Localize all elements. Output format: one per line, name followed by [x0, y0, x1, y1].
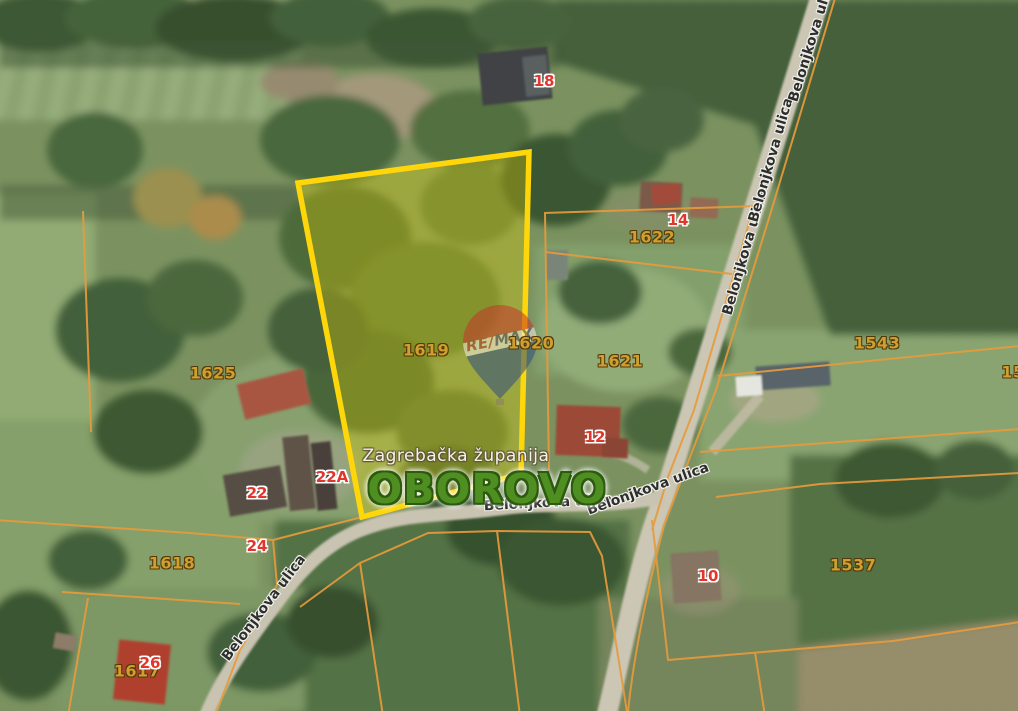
parcel-label-1537: 1537 [830, 556, 877, 575]
parcel-label-partial-15: 15 [1001, 363, 1018, 382]
parcel-label-1622: 1622 [629, 228, 676, 247]
parcel-label-1618: 1618 [149, 554, 196, 573]
parcel-label-1625: 1625 [190, 364, 237, 383]
house-number-12: 12 [585, 428, 606, 446]
street-label-belonjkova-ne-upper: Belonjkova ulica [746, 96, 797, 224]
house-number-10: 10 [698, 567, 719, 585]
map-viewport[interactable]: RE/MAX 1619 1620 1621 1622 1625 1618 161… [0, 0, 1018, 711]
house-number-26: 26 [140, 654, 161, 672]
settlement-label: OBOROVO [367, 465, 606, 513]
house-number-18: 18 [534, 72, 555, 90]
parcel-label-1620: 1620 [508, 334, 555, 353]
parcel-label-1543: 1543 [854, 334, 901, 353]
house-number-22A: 22A [316, 468, 348, 486]
house-number-14: 14 [668, 211, 689, 229]
map-labels-layer: 1619 1620 1621 1622 1625 1618 1617 1543 … [0, 0, 1018, 711]
street-label-belonjkova-southwest: Belonjkova ulica [219, 552, 309, 664]
house-number-24: 24 [247, 537, 268, 555]
house-number-22: 22 [247, 484, 268, 502]
parcel-label-1619: 1619 [403, 341, 450, 360]
parcel-label-1621: 1621 [597, 352, 644, 371]
region-label: Zagrebačka županija [363, 446, 550, 466]
street-label-belonjkova-top-cut: Belonjkova ulica [786, 0, 839, 104]
